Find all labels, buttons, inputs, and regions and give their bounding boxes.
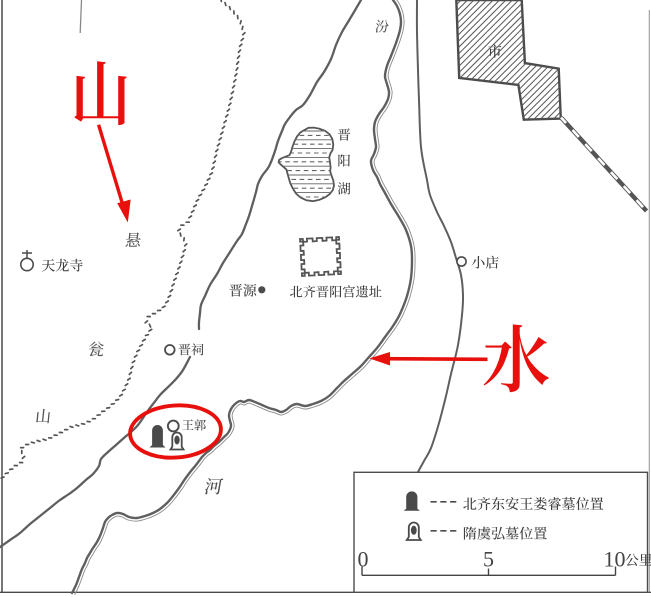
svg-text:10: 10 [604, 547, 626, 572]
svg-text:0: 0 [358, 547, 369, 572]
svg-text:5: 5 [483, 547, 494, 572]
